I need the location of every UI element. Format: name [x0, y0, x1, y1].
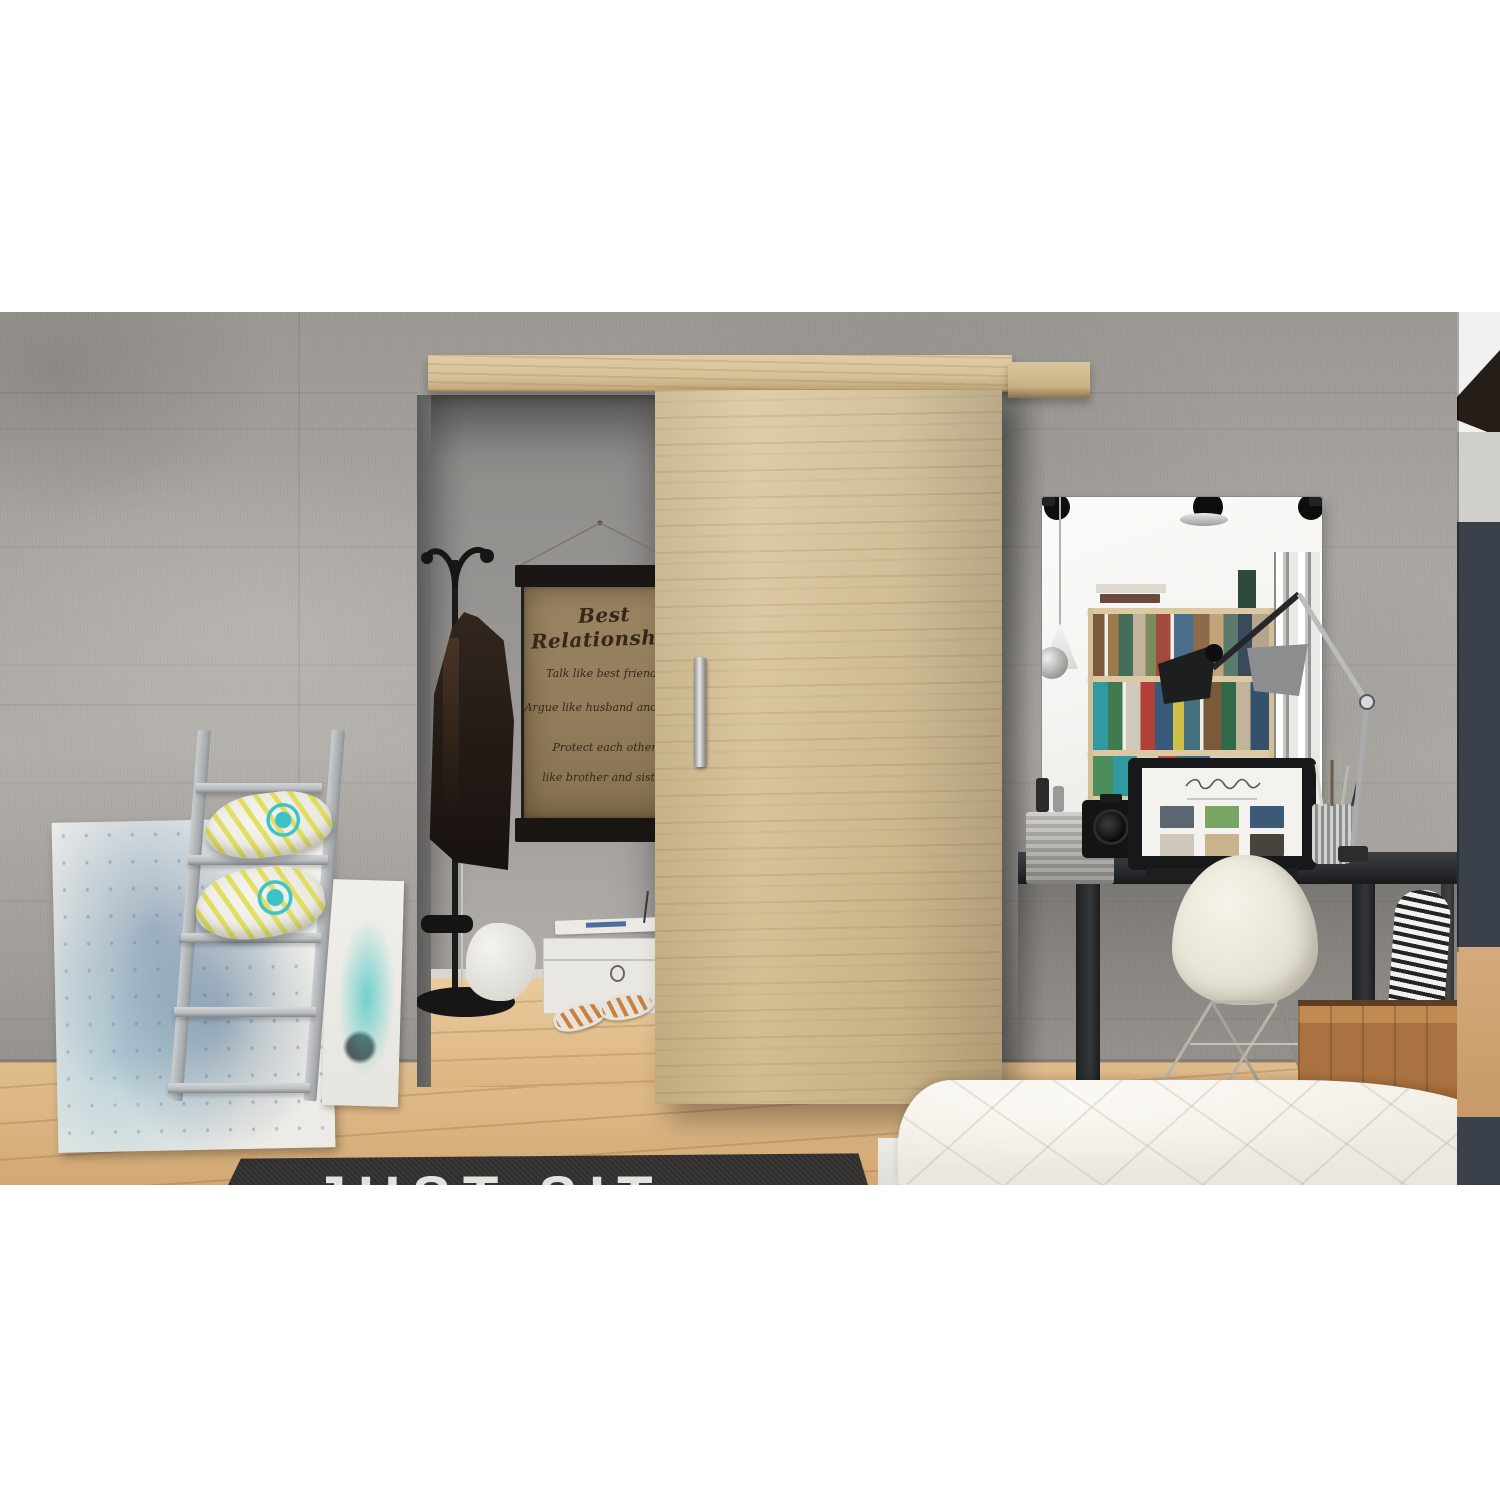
hanging-coat [428, 612, 514, 870]
closet-doorway: Best Relationship Talk like best friends… [417, 395, 658, 1087]
script-logo-icon [1182, 776, 1262, 792]
laptop-screen [1142, 768, 1302, 856]
sliding-door-panel [655, 390, 1002, 1104]
ladder-shelf-4 [174, 1007, 316, 1017]
hallway-upper-wall [1457, 432, 1500, 522]
mirror-clip [1042, 497, 1055, 506]
laptop [1128, 758, 1316, 870]
wall-poster: Best Relationship Talk like best friends… [521, 587, 658, 818]
ladder-shelf-5 [168, 1083, 310, 1093]
cosmetic-bottle [1036, 778, 1049, 812]
poster-line-4: like brother and sister [524, 771, 658, 784]
flat-book [1096, 584, 1166, 593]
quilted-bed [898, 1080, 1500, 1185]
screen-thumbnail [1160, 806, 1194, 828]
screen-thumbnail [1250, 806, 1284, 828]
chest-lid-line [544, 959, 658, 961]
wall-sconce-icon [1042, 647, 1068, 679]
screen-thumbnail [1250, 834, 1284, 856]
shelf-side [1088, 608, 1093, 802]
mirror-clip [1309, 497, 1322, 506]
pendant-cord [1059, 497, 1061, 625]
flat-book [1100, 594, 1160, 603]
poster-line-3: Protect each other [524, 741, 658, 754]
cosmetic-bottle [1053, 786, 1064, 812]
chest-lock [610, 965, 625, 982]
wall-corner-line [1457, 312, 1459, 952]
poster-frame-bottom [515, 818, 658, 842]
hallway-floor [1457, 947, 1500, 1117]
wall-seam-horizontal-lower [0, 704, 417, 706]
wall-seam-horizontal-left [0, 392, 417, 394]
screen-thumbnail [1160, 834, 1194, 856]
poster-frame-top [515, 565, 658, 587]
rolled-blanket [1388, 888, 1453, 1016]
poster-line-1: Talk like best friends [524, 667, 658, 680]
book-row-1 [1092, 614, 1270, 676]
hallway [1457, 312, 1500, 1185]
spotlight-dish [1180, 513, 1228, 526]
room-photo: JUST SIT [0, 312, 1500, 1185]
umbrella-holder [421, 915, 473, 933]
ladder-shelf-1 [196, 783, 322, 793]
magazine-on-chest [555, 917, 657, 935]
upright-book [1238, 570, 1256, 608]
screen-thumbnail [1205, 834, 1239, 856]
rug-text: JUST SIT [314, 1164, 665, 1185]
product-photo-page: JUST SIT [0, 0, 1500, 1500]
book-row-2 [1092, 682, 1272, 750]
door-track-end-cap [1008, 362, 1090, 398]
door-handle [694, 657, 706, 767]
pencil-cup [1312, 804, 1352, 864]
door-jamb [417, 395, 431, 1087]
screen-nav-line [1187, 798, 1257, 800]
poster-title: Best Relationship [523, 600, 658, 654]
door-track-rail [428, 355, 1012, 392]
screen-thumbnail [1205, 806, 1239, 828]
poster-line-2: Argue like husband and wife [524, 701, 658, 714]
coat-rack-hooks-icon [417, 525, 527, 595]
